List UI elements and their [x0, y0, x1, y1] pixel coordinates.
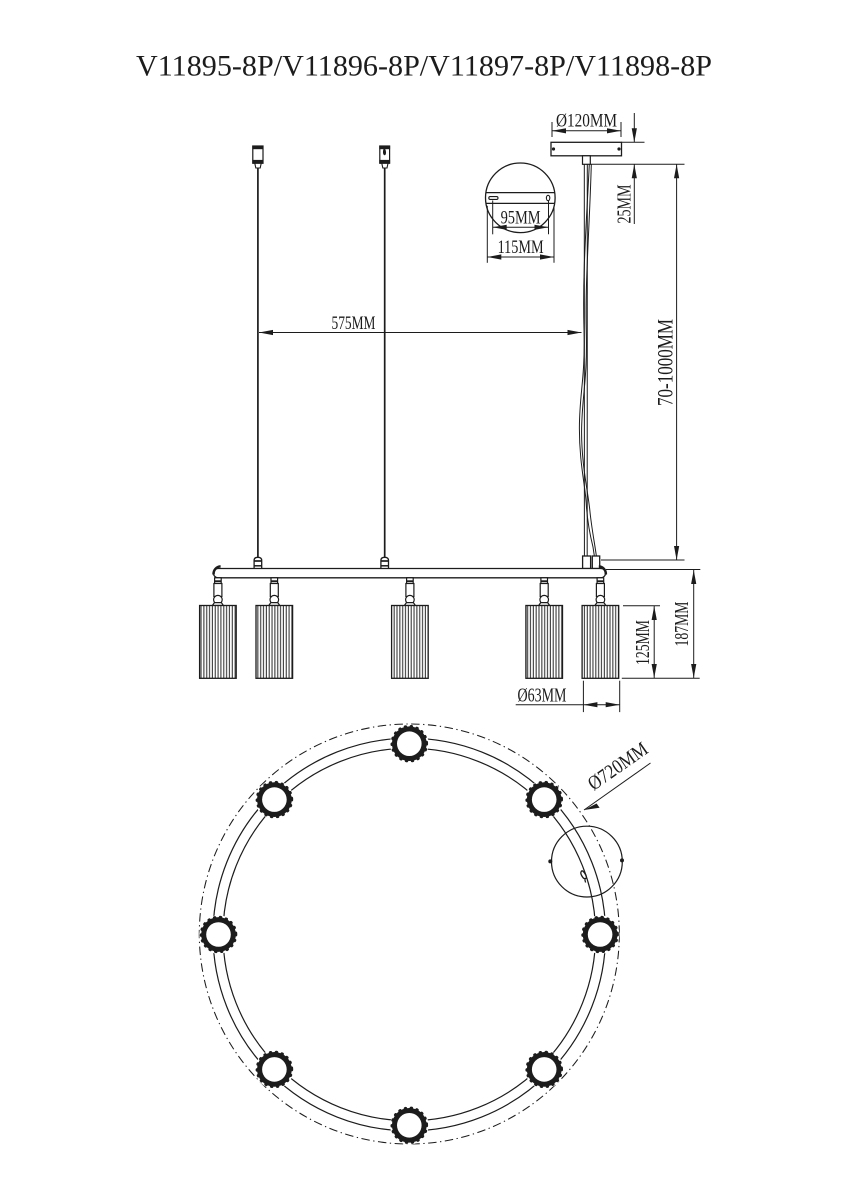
svg-text:125MM: 125MM	[633, 620, 654, 665]
svg-text:Ø120MM: Ø120MM	[556, 111, 617, 132]
svg-text:187MM: 187MM	[672, 602, 693, 647]
svg-text:95MM: 95MM	[501, 208, 541, 229]
svg-text:575MM: 575MM	[332, 313, 376, 334]
svg-text:Ø63MM: Ø63MM	[518, 686, 567, 707]
svg-text:115MM: 115MM	[498, 237, 544, 258]
svg-text:70-1000MM: 70-1000MM	[653, 319, 678, 406]
svg-text:25MM: 25MM	[614, 184, 636, 223]
svg-text:V11895-8P/V11896-8P/V11897-8P/: V11895-8P/V11896-8P/V11897-8P/V11898-8P	[136, 50, 712, 83]
